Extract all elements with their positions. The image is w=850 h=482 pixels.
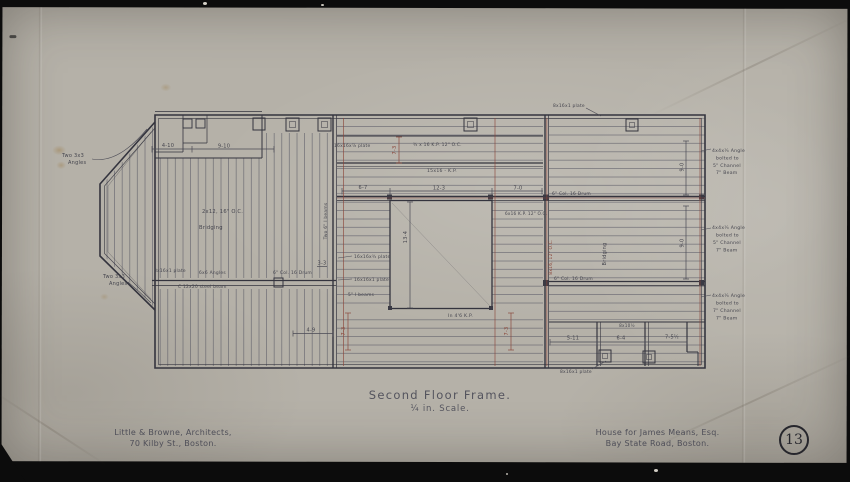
label-angles-top-1: Two 3x3 [61,153,84,159]
margin-mid-line3: 5" Channel [713,240,741,246]
dim-12-3: 12-3 [433,186,445,192]
label-right-joists: 8x16, 12" O.C. [548,239,554,274]
margin-top-line2: bolted to [716,156,739,162]
label-kp-mid: 15x16 - K.P. [427,168,457,174]
margin-top-line1: 4x4x¼ Angle [712,148,745,154]
label-two-6-ibeams: Two 6" I beams [323,202,329,240]
architect-address: 70 Kilby St., Boston. [88,438,258,449]
margin-label-top: 4x4x¼ Angle bolted to 5" Channel 7" Beam [712,148,745,176]
dim-7-5: 7-5½ [665,334,679,341]
client-block: House for James Means, Esq. Bay State Ro… [575,427,740,449]
label-kp-right: 6x16 K.P. 12" O.C. [505,211,547,216]
margin-top-line4: 7" Beam [716,170,738,176]
label-left-plate: 8x16x1 plate [154,268,186,274]
margin-mid-line1: 4x4x¼ Angle [712,225,745,231]
dim-6-4: 6-4 [617,336,626,342]
label-plate-34: 16x16x¾ plate [354,254,390,260]
label-plate-1: 16x16x1 plate [354,277,389,283]
margin-bot-line2: bolted to [716,301,739,307]
label-plate-78: 16x16x⅞ plate [334,143,370,149]
margin-label-bottom: 4x4x¼ Angle bolted to 7" Channel 7" Beam [712,293,745,322]
margin-mid-line4: 7" Beam [716,248,738,254]
sheet-number-badge: 13 [779,425,809,455]
client-address: Bay State Road, Boston. [575,438,740,449]
dim-7-3-bottom-left: 7-3 [341,327,347,336]
label-left-joists: 2x12, 16" O.C. [202,209,243,215]
dim-3-3: 3-3 [318,261,327,267]
dim-7-0: 7-0 [514,186,523,192]
label-angles-bottom-1: Two 3x3 [102,274,125,280]
margin-bot-line4: 7" Beam [716,316,738,322]
dim-4-10: 4-10 [162,143,174,149]
margin-bot-line3: 7" Channel [713,308,741,314]
margin-top-line3: 5" Channel [713,163,741,169]
dim-6-7: 6-7 [359,185,368,191]
drawing-scale: ¼ in. Scale. [320,404,560,414]
scanned-drawing-sheet: Two 3x3 Angles Two 3x3 Angles 4-10 9-10 … [0,0,850,482]
dim-5-11: 5-11 [567,336,579,342]
label-angles-bottom-2: Angles [109,281,127,287]
label-right-plate-bottom: 8x16x1 plate [560,369,592,375]
label-right-col-drum-bottom: 6" Col. 16 Drum [554,276,593,282]
label-right-plate-top: 8x16x1 plate [553,103,585,109]
label-right-col-drum-top: 6" Col. 16 Drum [552,191,591,197]
dim-13-4: 13-4 [403,231,409,243]
dim-8-10: 8x10½ [619,323,635,328]
dim-7-3-top: 7-3 [392,146,398,155]
label-6x6-angles: 6x6 Angles [199,270,226,276]
label-kp-bottom: In 4'6 K.P. [448,313,473,319]
label-left-bridging: Bridging [199,225,223,231]
label-left-col-drum: 6" Col. 16 Drum [273,270,312,276]
label-angles-top-2: Angles [68,160,86,166]
dim-9-0-top: 9-0 [680,163,686,172]
architect-name: Little & Browne, Architects, [88,427,258,438]
architect-block: Little & Browne, Architects, 70 Kilby St… [88,427,258,449]
label-steel-beam: C 12x20 steel beam [178,284,227,290]
drawing-title: Second Floor Frame. [320,388,560,402]
dim-7-3-bottom-right: 7-3 [504,327,510,336]
label-right-bridging: Bridging [602,243,608,266]
dim-9-0-bottom: 9-0 [680,239,686,248]
sheet-number: 13 [785,432,803,448]
margin-label-middle: 4x4x¼ Angle bolted to 5" Channel 7" Beam [712,225,745,254]
dim-4-9: 4-9 [307,328,316,334]
margin-bot-line1: 4x4x¼ Angle [712,293,745,299]
label-5-ibeams: 5" I beams [348,292,375,298]
dim-9-10: 9-10 [218,144,230,150]
margin-mid-line2: bolted to [716,233,739,239]
title-block: Second Floor Frame. ¼ in. Scale. [320,388,560,414]
client-name: House for James Means, Esq. [575,427,740,438]
label-kp-top: ¾ x 16 K.P. 12" O.C. [413,142,462,148]
